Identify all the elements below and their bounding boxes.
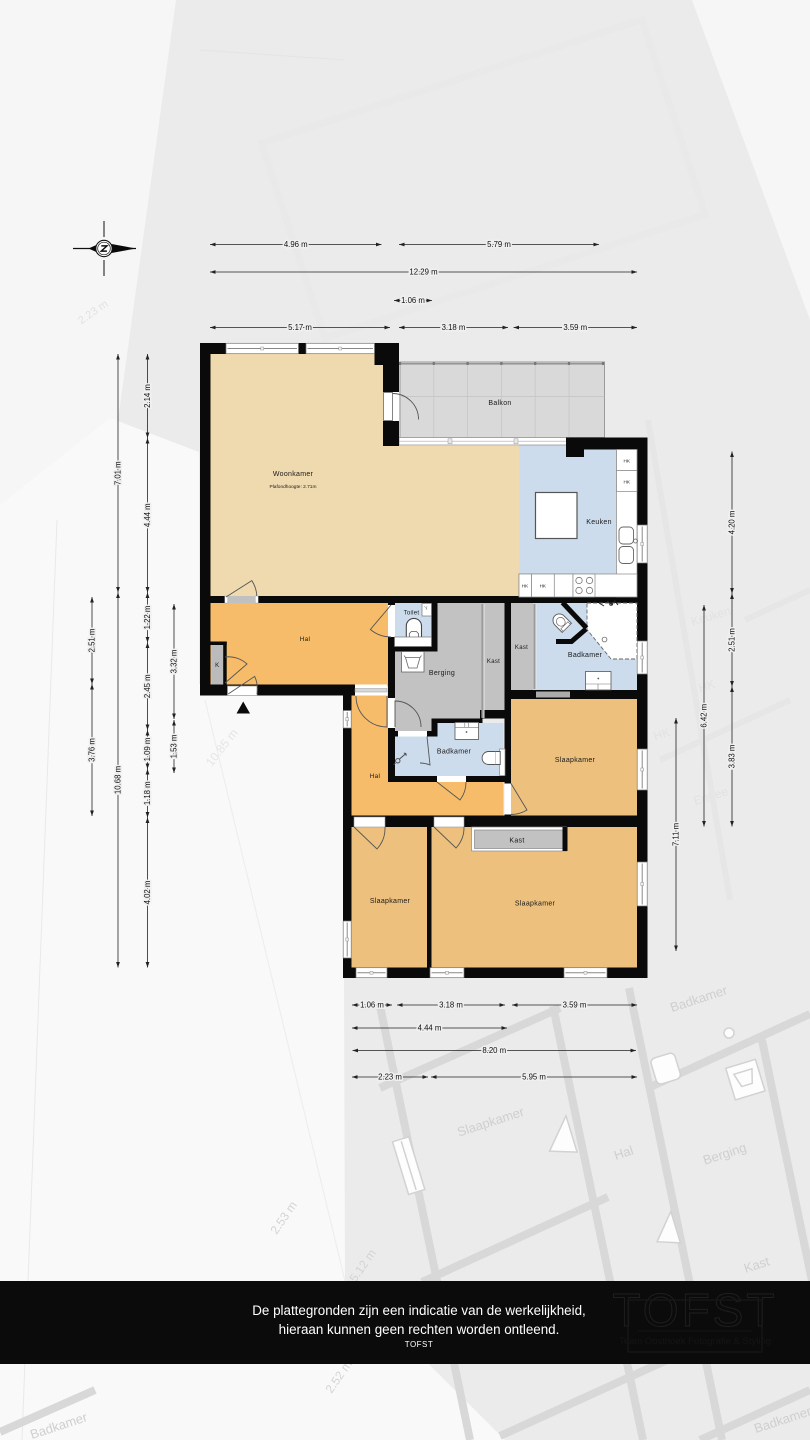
- svg-text:5.17 m: 5.17 m: [288, 323, 312, 332]
- svg-text:4.02 m: 4.02 m: [143, 881, 152, 905]
- svg-text:4.20 m: 4.20 m: [728, 511, 737, 535]
- svg-text:1.09 m: 1.09 m: [143, 738, 152, 762]
- svg-text:Team Oosthoek Fotografie & Sty: Team Oosthoek Fotografie & Styling: [619, 1336, 771, 1347]
- svg-text:Hal: Hal: [300, 636, 311, 643]
- svg-text:6.42 m: 6.42 m: [700, 704, 709, 728]
- svg-text:1.06 m: 1.06 m: [401, 296, 425, 305]
- svg-text:8.20 m: 8.20 m: [482, 1046, 506, 1055]
- svg-text:3.83 m: 3.83 m: [728, 745, 737, 769]
- svg-text:10.68 m: 10.68 m: [114, 766, 123, 794]
- svg-text:4.44 m: 4.44 m: [418, 1024, 442, 1033]
- svg-text:Slaapkamer: Slaapkamer: [370, 898, 411, 905]
- svg-text:HK: HK: [624, 459, 631, 464]
- svg-text:TOFST: TOFST: [613, 1284, 778, 1336]
- svg-text:Kast: Kast: [487, 659, 500, 665]
- svg-text:Keuken: Keuken: [586, 519, 612, 526]
- svg-text:2.45 m: 2.45 m: [143, 674, 152, 698]
- svg-text:Badkamer: Badkamer: [437, 749, 472, 756]
- svg-text:5.95 m: 5.95 m: [522, 1073, 546, 1082]
- svg-text:5.79 m: 5.79 m: [487, 240, 511, 249]
- svg-text:HK: HK: [522, 584, 529, 589]
- svg-text:Woonkamer: Woonkamer: [273, 471, 314, 478]
- svg-text:K: K: [215, 663, 219, 669]
- svg-text:Hal: Hal: [370, 773, 381, 780]
- svg-text:Slaapkamer: Slaapkamer: [515, 901, 556, 908]
- svg-text:3.76 m: 3.76 m: [88, 738, 97, 762]
- svg-text:hieraan kunnen geen rechten wo: hieraan kunnen geen rechten worden ontle…: [279, 1322, 560, 1337]
- svg-text:Badkamer: Badkamer: [568, 652, 603, 659]
- svg-text:7.01 m: 7.01 m: [114, 461, 123, 485]
- svg-text:HK: HK: [540, 584, 547, 589]
- svg-text:Kast: Kast: [515, 645, 528, 651]
- svg-text:4.96 m: 4.96 m: [284, 240, 308, 249]
- svg-text:HK: HK: [624, 480, 631, 485]
- svg-text:12.29 m: 12.29 m: [409, 268, 437, 277]
- svg-text:Toilet: Toilet: [404, 611, 420, 617]
- svg-text:Kast: Kast: [509, 838, 524, 845]
- svg-text:Balkon: Balkon: [488, 400, 511, 407]
- svg-text:2.23 m: 2.23 m: [378, 1073, 402, 1082]
- svg-text:2.14 m: 2.14 m: [143, 384, 152, 408]
- svg-text:2.51 m: 2.51 m: [728, 628, 737, 652]
- svg-text:1.18 m: 1.18 m: [143, 781, 152, 805]
- svg-text:3.59 m: 3.59 m: [563, 1001, 587, 1010]
- svg-text:TOFST: TOFST: [405, 1340, 434, 1349]
- svg-text:1.22 m: 1.22 m: [143, 606, 152, 630]
- svg-text:Berging: Berging: [429, 670, 455, 677]
- svg-text:3.32 m: 3.32 m: [170, 650, 179, 674]
- svg-text:3.18 m: 3.18 m: [439, 1001, 463, 1010]
- svg-text:De plattegronden zijn een indi: De plattegronden zijn een indicatie van …: [252, 1303, 586, 1318]
- svg-text:7.11 m: 7.11 m: [672, 823, 681, 846]
- svg-text:3.59 m: 3.59 m: [563, 323, 587, 332]
- svg-text:1.06 m: 1.06 m: [360, 1001, 384, 1010]
- svg-text:2.51 m: 2.51 m: [88, 629, 97, 653]
- svg-text:1.53 m: 1.53 m: [170, 735, 179, 759]
- svg-text:Slaapkamer: Slaapkamer: [555, 757, 596, 764]
- svg-text:Plafondhoogte: 2.71m: Plafondhoogte: 2.71m: [270, 484, 317, 490]
- svg-text:4.44 m: 4.44 m: [143, 503, 152, 527]
- svg-text:3.18 m: 3.18 m: [442, 323, 466, 332]
